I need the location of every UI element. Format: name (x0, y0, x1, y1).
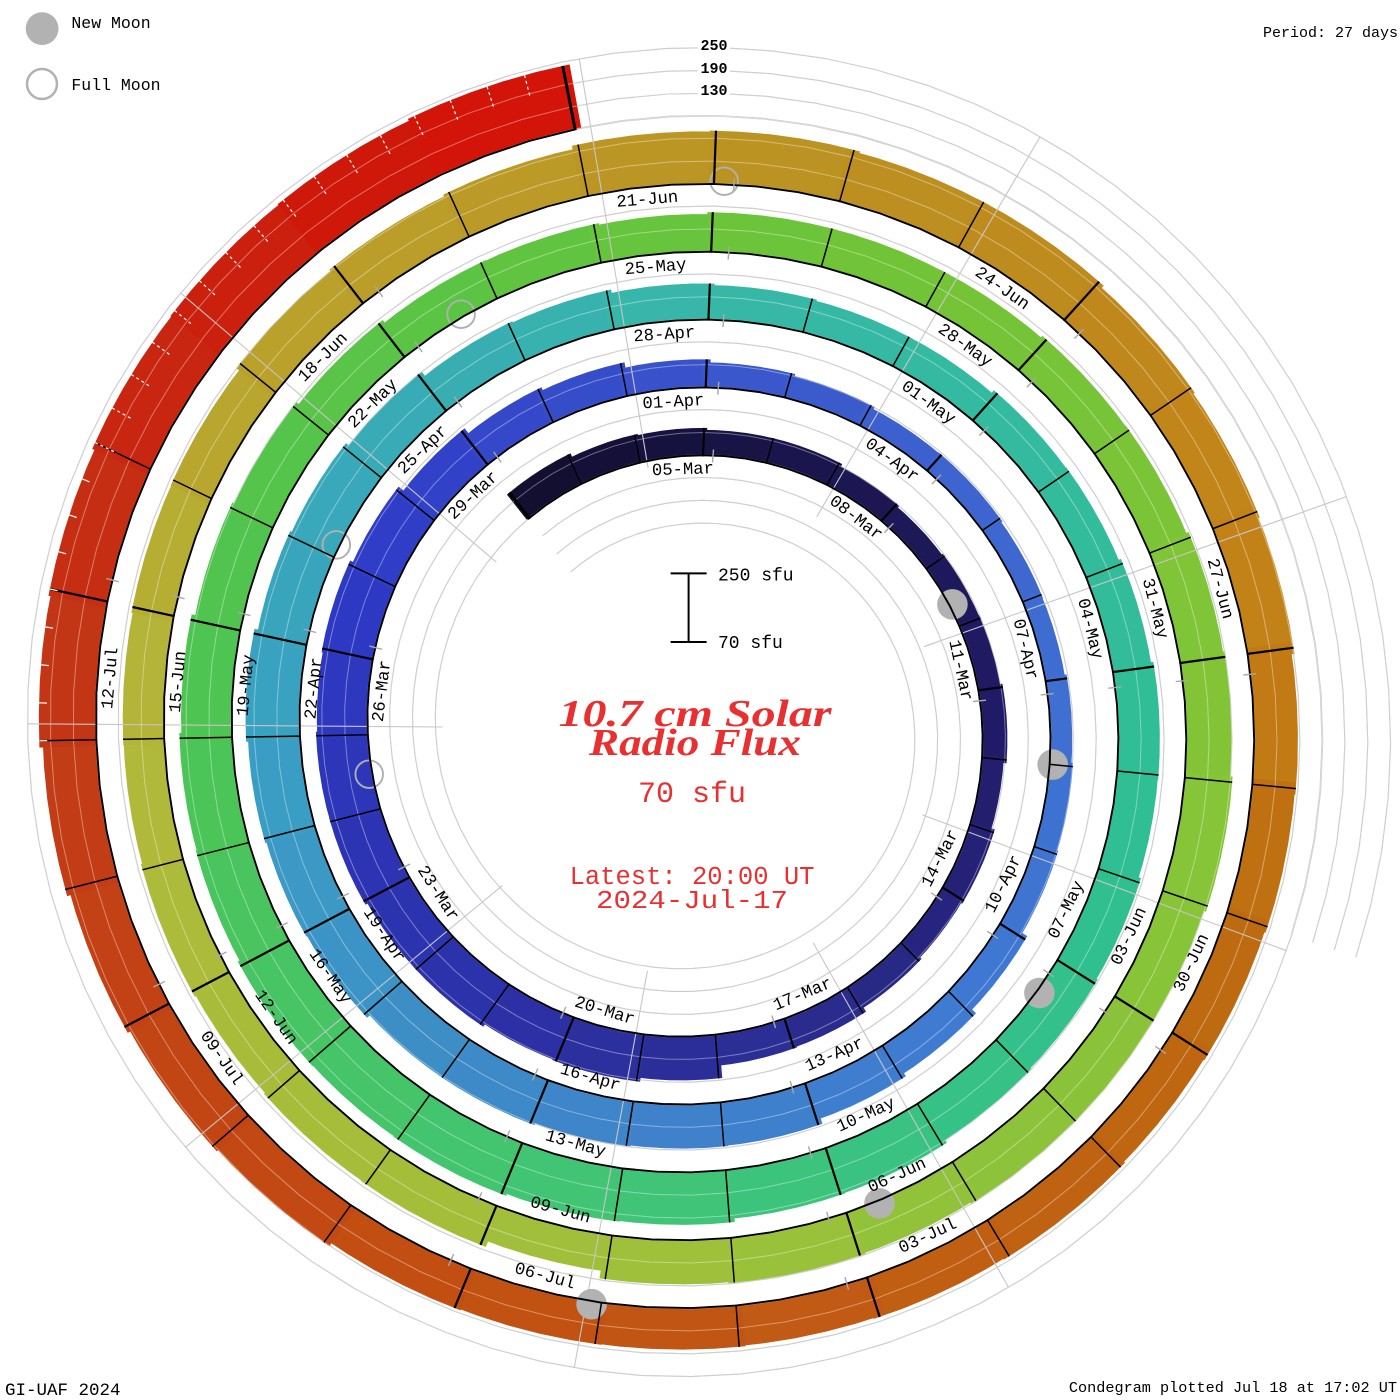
svg-text:250 sfu: 250 sfu (718, 567, 794, 587)
svg-text:Period: 27 days: Period: 27 days (1263, 25, 1398, 42)
svg-text:GI-UAF 2024: GI-UAF 2024 (5, 1381, 121, 1400)
svg-text:Radio Flux: Radio Flux (588, 722, 801, 764)
svg-text:250: 250 (701, 38, 728, 55)
svg-text:New Moon: New Moon (71, 14, 150, 33)
svg-text:190: 190 (701, 61, 728, 78)
svg-text:130: 130 (701, 83, 728, 100)
svg-text:2024-Jul-17: 2024-Jul-17 (596, 886, 788, 916)
svg-text:70 sfu: 70 sfu (638, 778, 746, 812)
svg-text:70 sfu: 70 sfu (718, 634, 783, 654)
svg-text:05-Mar: 05-Mar (652, 460, 715, 481)
svg-text:01-Apr: 01-Apr (642, 392, 705, 414)
svg-text:Condegram plotted Jul 18 at 17: Condegram plotted Jul 18 at 17:02 UT (1069, 1379, 1397, 1397)
svg-text:Full Moon: Full Moon (71, 76, 160, 95)
